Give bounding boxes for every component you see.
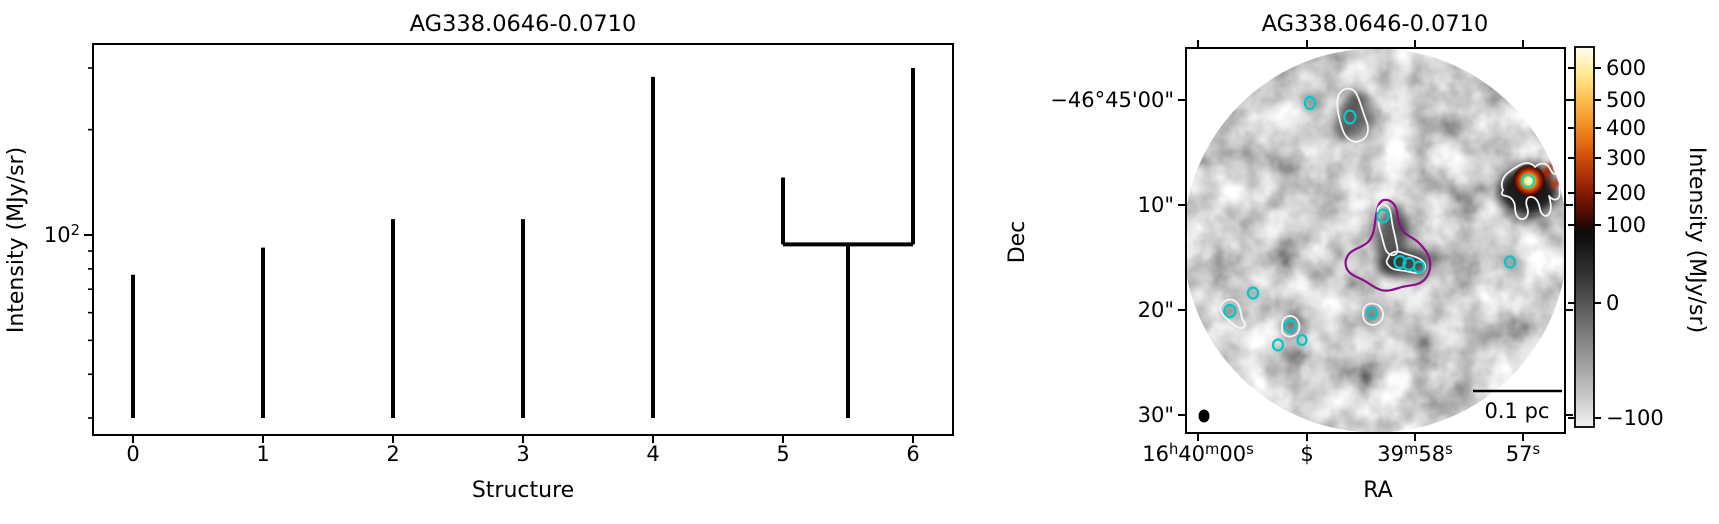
map-ylabel: Dec [1005,221,1030,264]
x-tick-label: 1 [256,442,269,466]
colorbar-tick-label: 600 [1606,56,1646,80]
colorbar-tick-label: 300 [1606,146,1646,170]
map-xlabel: RA [1363,478,1392,503]
x-tick-label: 4 [646,442,659,466]
figure: 0123456102 16h40m00s$39m58s57s−46°45'00"… [0,0,1719,520]
colorbar-tick-label: −100 [1606,406,1664,430]
x-tick-label: 6 [906,442,919,466]
map-title: AG338.0646-0.0710 [1262,11,1489,37]
dec-tick-label: 10" [1138,193,1174,217]
colorbar-gradient [1575,47,1594,427]
colorbar-tick-label: 0 [1606,291,1619,315]
dendrogram-xlabel: Structure [472,478,574,503]
bright-source-glow [1512,164,1546,198]
map-panel: 16h40m00s$39m58s57s−46°45'00"10"20"30"60… [1050,40,1663,466]
ra-tick-label: 16h40m00s [1142,441,1253,466]
x-tick-label: 3 [516,442,529,466]
map-field [1186,48,1568,433]
colorbar-tick-label: 500 [1606,88,1646,112]
dec-tick-label: 30" [1138,403,1174,427]
dendrogram-panel: 0123456102 [44,44,953,466]
colorbar-tick-label: 400 [1606,116,1646,140]
ra-tick-label: 57s [1506,441,1540,466]
beam-ellipse [1199,410,1210,423]
dendrogram-title: AG338.0646-0.0710 [410,11,637,37]
map-field-clip [1186,48,1568,433]
y-tick-label: 102 [44,222,80,247]
dec-tick-label: 20" [1138,298,1174,322]
figure-canvas: 0123456102 16h40m00s$39m58s57s−46°45'00"… [0,0,1719,520]
dec-tick-label: −46°45'00" [1050,88,1174,112]
noise-map [1186,48,1565,433]
colorbar-tick-label: 200 [1606,181,1646,205]
colorbar-tick-label: 100 [1606,213,1646,237]
x-tick-label: 2 [386,442,399,466]
x-tick-label: 5 [776,442,789,466]
scalebar-label: 0.1 pc [1485,399,1550,423]
x-tick-label: 0 [126,442,139,466]
ra-tick-label: $ [1300,442,1313,466]
ra-tick-label: 39m58s [1377,441,1452,466]
dendrogram-ylabel: Intensity (MJy/sr) [4,147,29,333]
colorbar-label: Intensity (MJy/sr) [1684,147,1709,333]
